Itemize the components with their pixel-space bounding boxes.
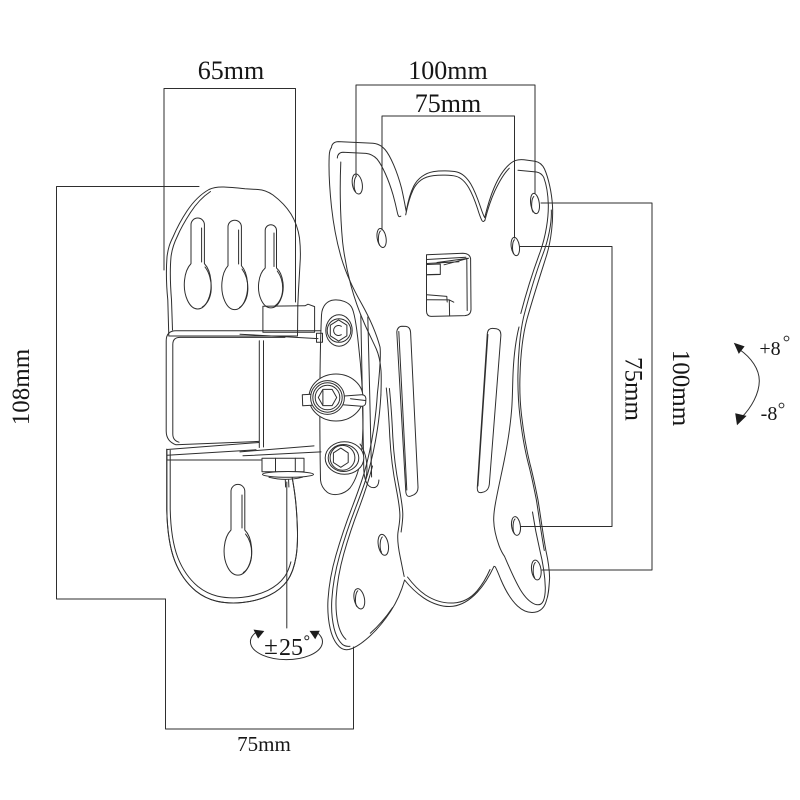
svg-text:75mm: 75mm <box>415 89 481 118</box>
svg-text:75mm: 75mm <box>620 357 647 421</box>
svg-text:100mm: 100mm <box>667 350 694 427</box>
svg-text:108mm: 108mm <box>8 348 35 425</box>
svg-text:100mm: 100mm <box>408 56 487 85</box>
svg-text:25: 25 <box>279 635 303 661</box>
svg-text:-8: -8 <box>761 403 778 425</box>
svg-text:75mm: 75mm <box>237 732 291 756</box>
svg-text:65mm: 65mm <box>198 56 264 85</box>
svg-text:+8: +8 <box>759 338 780 360</box>
svg-text:±: ± <box>264 633 278 660</box>
